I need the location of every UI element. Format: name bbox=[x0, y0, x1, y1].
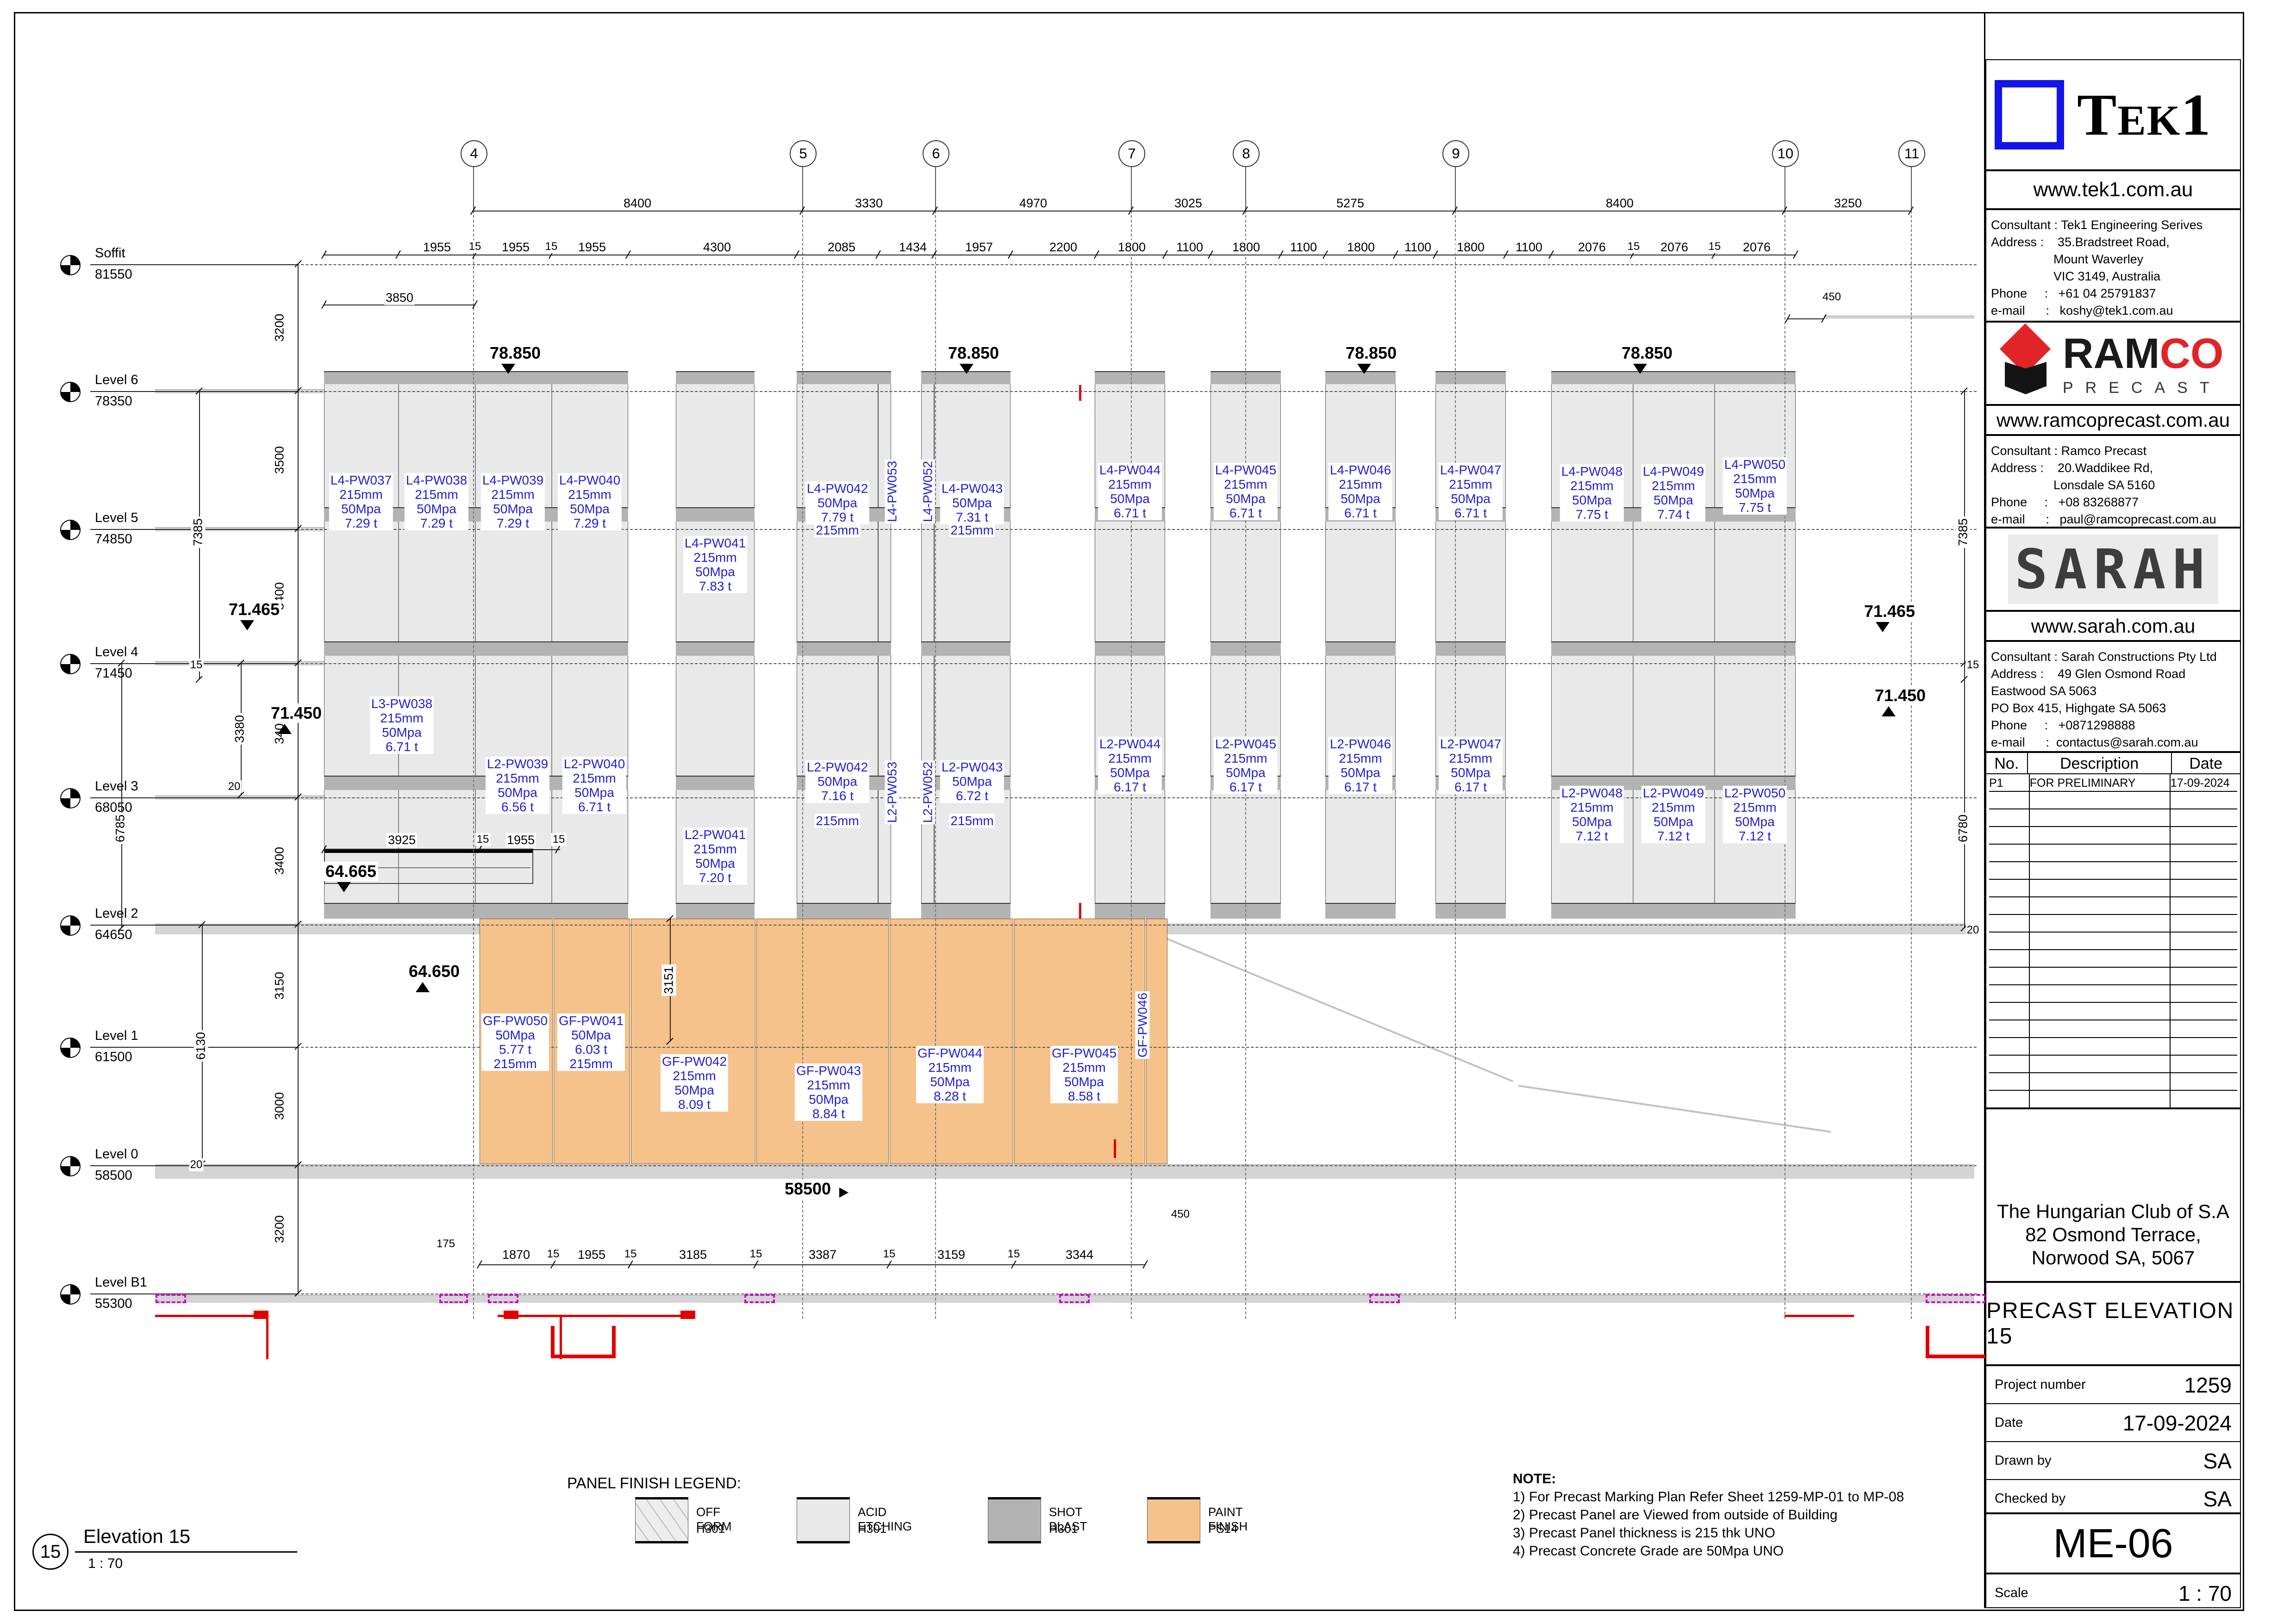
panel-mark-line: 50Mpa bbox=[916, 1075, 984, 1089]
dim-label: 3025 bbox=[1173, 196, 1204, 211]
level-line-solid bbox=[90, 1293, 298, 1294]
field-value: 17-09-2024 bbox=[2123, 1411, 2232, 1436]
panel-mark-line: 215mm bbox=[795, 1078, 862, 1092]
revision-cell bbox=[1989, 1038, 2030, 1056]
dim-label-vertical: 6785 bbox=[113, 813, 128, 844]
panel-mark-line: 50Mpa bbox=[1214, 491, 1278, 506]
dim-label: 1800 bbox=[1346, 240, 1376, 255]
red-mark-line bbox=[1784, 1315, 1854, 1317]
grid-line-stub bbox=[1911, 165, 1912, 211]
revision-cell bbox=[2171, 950, 2237, 968]
dim-line-vertical bbox=[121, 663, 122, 928]
revision-row bbox=[1986, 862, 2240, 880]
panel-mark-line: 6.03 t bbox=[557, 1042, 625, 1057]
revision-cell bbox=[2030, 1020, 2171, 1038]
panel-mark-line: 215mm bbox=[949, 814, 995, 828]
level-elevation: 58500 bbox=[95, 1168, 132, 1183]
dim-label-small: 20 bbox=[189, 1158, 204, 1171]
dim-label: 3344 bbox=[1064, 1248, 1095, 1262]
panel-mark-line: 215mm bbox=[1329, 751, 1392, 765]
field-label: Project number bbox=[1995, 1377, 2086, 1393]
level-name: Level 5 bbox=[95, 510, 138, 526]
sheet-title: PRECAST ELEVATION 15 bbox=[1985, 1282, 2241, 1365]
revision-row bbox=[1986, 792, 2240, 809]
note-line: 3) Precast Panel thickness is 215 thk UN… bbox=[1513, 1524, 1904, 1542]
legend-swatch-shot bbox=[988, 1497, 1041, 1543]
panel-mark-line: 215mm bbox=[1214, 751, 1278, 765]
panel-mark-line: 8.28 t bbox=[916, 1089, 984, 1103]
panel-mark-label: 215mm bbox=[949, 523, 995, 537]
revision-cell: FOR PRELIMINARY bbox=[2030, 774, 2171, 792]
panel-mark-line: 6.17 t bbox=[1214, 780, 1278, 794]
panel-mark-label: L4-PW040215mm50Mpa7.29 t bbox=[558, 473, 622, 530]
revision-row bbox=[1986, 1020, 2240, 1038]
panel-mark-line: 215mm bbox=[1098, 751, 1162, 765]
panel-mark-line: L4-PW039 bbox=[481, 473, 545, 487]
grid-line-stub bbox=[1245, 165, 1246, 211]
panel-mark-line: 215mm bbox=[683, 842, 747, 856]
dim-label-vertical: 7385 bbox=[1956, 516, 1971, 548]
dim-label: 3850 bbox=[384, 291, 415, 305]
revision-cell bbox=[1989, 915, 2030, 933]
panel-mark-line: 7.79 t bbox=[805, 510, 869, 524]
grid-line bbox=[802, 211, 803, 1319]
revision-cell bbox=[2030, 897, 2171, 915]
panel-mark-line: 7.31 t bbox=[940, 510, 1004, 524]
spot-elevation-marker-down bbox=[1633, 364, 1647, 374]
panel-mark-label: L2-PW045215mm50Mpa6.17 t bbox=[1214, 737, 1278, 794]
legend-item-code: PS14 bbox=[1208, 1522, 1238, 1536]
revision-cell bbox=[1989, 985, 2030, 1003]
dim-label-vertical: 7385 bbox=[191, 516, 206, 548]
shot-blast-band bbox=[1435, 371, 1506, 384]
revision-cell bbox=[2030, 845, 2171, 862]
spot-elevation-value: 58500 bbox=[783, 1179, 833, 1199]
panel-mark-line: 50Mpa bbox=[1560, 815, 1624, 829]
ramco-contact-info: Consultant : Ramco PrecastAddress : 20.W… bbox=[1985, 435, 2241, 528]
spot-elevation-value: 78.850 bbox=[1620, 343, 1674, 363]
revision-cell bbox=[1989, 862, 2030, 880]
shot-blast-band bbox=[324, 903, 628, 919]
revision-cell bbox=[2171, 1038, 2237, 1056]
grid-bubble: 7 bbox=[1118, 140, 1145, 167]
dim-label: 1434 bbox=[898, 240, 928, 255]
revision-cell bbox=[1989, 897, 2030, 915]
revision-row bbox=[1986, 1056, 2240, 1073]
panel-mark-label: L4-PW044215mm50Mpa6.71 t bbox=[1098, 463, 1162, 520]
level-elevation: 81550 bbox=[95, 267, 132, 282]
panel-mark-line: L3-PW038 bbox=[370, 696, 434, 711]
panel-mark-line: L4-PW037 bbox=[329, 473, 393, 487]
note-line: 4) Precast Concrete Grade are 50Mpa UNO bbox=[1513, 1542, 1904, 1560]
panel-mark-line: 7.29 t bbox=[558, 516, 622, 530]
grid-line bbox=[1784, 211, 1785, 1319]
panel-mark-line: 50Mpa bbox=[1098, 765, 1162, 780]
panel-mark-line: 6.71 t bbox=[562, 800, 626, 814]
revision-cell: Description bbox=[2028, 753, 2172, 774]
level-name: Level B1 bbox=[95, 1275, 147, 1290]
panel-mark-label: L4-PW04250Mpa7.79 t bbox=[805, 481, 869, 524]
dim-label: 1100 bbox=[1403, 240, 1433, 255]
scale-value: 1 : 70 bbox=[2178, 1581, 2232, 1606]
panel-mark-label: GF-PW043215mm50Mpa8.84 t bbox=[795, 1063, 862, 1121]
panel-mark-line: 50Mpa bbox=[329, 502, 393, 516]
panel-mark-line: 215mm bbox=[814, 523, 860, 537]
level-line-solid bbox=[90, 264, 298, 265]
panel-mark-line: L2-PW040 bbox=[562, 757, 626, 771]
panel-mark-label: L4-PW041215mm50Mpa7.83 t bbox=[683, 536, 747, 593]
panel-mark-line: GF-PW050 bbox=[481, 1014, 549, 1028]
revision-cell bbox=[2171, 1056, 2237, 1073]
panel-mark-line: 50Mpa bbox=[1098, 491, 1162, 506]
shot-blast-band bbox=[934, 903, 1011, 919]
spot-elevation-marker-up bbox=[1882, 706, 1896, 716]
note-line: 1) For Precast Marking Plan Refer Sheet … bbox=[1513, 1488, 1904, 1506]
title-field-row: Drawn bySA bbox=[1986, 1442, 2240, 1480]
revision-cell bbox=[1989, 1003, 2030, 1020]
panel-mark-label: L2-PW053 bbox=[885, 760, 899, 824]
panel-mark-line: 215mm bbox=[1723, 800, 1787, 815]
panel-mark-line: 50Mpa bbox=[805, 496, 869, 510]
tek1-logo-square-icon bbox=[1995, 80, 2064, 149]
level-dim-label: 3200 bbox=[273, 1213, 287, 1245]
panel-mark-line: 6.17 t bbox=[1329, 780, 1392, 794]
panel-mark-line: GF-PW042 bbox=[661, 1054, 728, 1069]
scale-row: Scale 1 : 70 bbox=[1985, 1573, 2241, 1608]
panel-mark-line: L2-PW041 bbox=[683, 827, 747, 842]
revision-cell bbox=[1989, 880, 2030, 897]
dim-line bbox=[1788, 318, 1824, 319]
revision-cell bbox=[2030, 1091, 2171, 1108]
grid-line-stub bbox=[1131, 165, 1132, 211]
title-field-row: Checked bySA bbox=[1986, 1480, 2240, 1518]
dim-label: 8400 bbox=[1604, 196, 1635, 211]
revision-row bbox=[1986, 1091, 2240, 1108]
panel-mark-label: L2-PW046215mm50Mpa6.17 t bbox=[1329, 737, 1392, 794]
panel-mark-line: 8.84 t bbox=[795, 1107, 862, 1121]
level-dim-label: 3150 bbox=[273, 970, 287, 1001]
revision-row bbox=[1986, 809, 2240, 827]
panel-mark-label: L2-PW047215mm50Mpa6.17 t bbox=[1439, 737, 1503, 794]
dim-label: 15 bbox=[544, 240, 559, 253]
dim-label: 15 bbox=[749, 1248, 764, 1261]
panel-mark-label: L2-PW049215mm50Mpa7.12 t bbox=[1641, 786, 1705, 843]
panel-mark-line: 6.71 t bbox=[1098, 506, 1162, 520]
field-value: SA bbox=[2203, 1486, 2232, 1511]
panel-mark-line: 50Mpa bbox=[558, 502, 622, 516]
spot-elevation-marker-up bbox=[278, 724, 292, 734]
client-line: 82 Osmond Terrace, bbox=[1986, 1223, 2240, 1246]
spot-elevation-marker-down bbox=[1357, 364, 1371, 374]
revision-row: No.DescriptionDate bbox=[1986, 753, 2240, 774]
panel-mark-line: L4-PW042 bbox=[805, 481, 869, 496]
dim-line bbox=[473, 211, 1911, 211]
panel-mark-label: 215mm bbox=[814, 814, 860, 828]
spot-elevation-value: 78.850 bbox=[1344, 343, 1398, 363]
panel-mark-line: GF-PW041 bbox=[557, 1014, 625, 1028]
paint-finish-panel bbox=[1014, 919, 1145, 1164]
magenta-dowel-mark bbox=[1926, 1294, 1986, 1303]
panel-mark-line: 50Mpa bbox=[557, 1028, 625, 1042]
dim-label: 3185 bbox=[678, 1248, 708, 1262]
level-name: Level 1 bbox=[95, 1028, 138, 1044]
revision-cell bbox=[1989, 809, 2030, 827]
panel-mark-line: 6.71 t bbox=[1214, 506, 1278, 520]
magenta-dowel-mark bbox=[488, 1294, 518, 1303]
panel-mark-line: 215mm bbox=[949, 523, 995, 537]
panel-mark-line: 215mm bbox=[1641, 800, 1705, 815]
sarah-website: www.sarah.com.au bbox=[1985, 611, 2241, 641]
shot-blast-band bbox=[324, 371, 628, 384]
sarah-logo-text: SARAH bbox=[2008, 535, 2218, 604]
panel-mark-line: L2-PW052 bbox=[921, 760, 935, 824]
spot-elevation-marker-down bbox=[501, 364, 515, 374]
panel-mark-line: L4-PW049 bbox=[1641, 464, 1705, 479]
level-elevation: 78350 bbox=[95, 394, 132, 409]
spot-elevation-marker-down bbox=[337, 882, 351, 892]
legend-swatch-offform bbox=[635, 1497, 688, 1543]
level-name: Level 0 bbox=[95, 1147, 138, 1162]
grid-line bbox=[1911, 211, 1912, 1319]
dim-label: 1955 bbox=[576, 1248, 607, 1262]
panel-mark-line: 50Mpa bbox=[683, 856, 747, 871]
level-dim-label: 3000 bbox=[273, 1090, 287, 1122]
revision-row: P1FOR PRELIMINARY17-09-2024 bbox=[1986, 774, 2240, 792]
panel-mark-label: GF-PW04150Mpa6.03 t215mm bbox=[557, 1014, 625, 1071]
level-marker bbox=[60, 654, 81, 674]
spot-elevation-value: 64.650 bbox=[407, 962, 462, 981]
grid-bubble: 4 bbox=[461, 140, 487, 167]
panel-mark-line: L2-PW042 bbox=[805, 760, 869, 774]
revision-cell bbox=[2030, 950, 2171, 968]
panel-mark-line: 50Mpa bbox=[370, 725, 434, 740]
title-field-row: Date17-09-2024 bbox=[1986, 1404, 2240, 1442]
level-elevation: 64650 bbox=[95, 927, 132, 943]
shot-blast-band bbox=[797, 641, 878, 656]
title-field-row: Project number1259 bbox=[1986, 1366, 2240, 1404]
panel-mark-line: 215mm bbox=[481, 1057, 549, 1071]
revision-cell: Date bbox=[2172, 753, 2240, 774]
revision-cell bbox=[2171, 1003, 2237, 1020]
grid-bubble: 11 bbox=[1898, 140, 1925, 167]
panel-mark-line: 6.72 t bbox=[940, 789, 1004, 803]
revision-cell bbox=[2171, 845, 2237, 862]
revision-cell bbox=[1989, 827, 2030, 845]
revision-row bbox=[1986, 845, 2240, 862]
grid-line bbox=[473, 211, 474, 1319]
panel-mark-label: L2-PW039215mm50Mpa6.56 t bbox=[486, 757, 549, 814]
spot-elevation-value: 71.450 bbox=[269, 703, 324, 723]
panel-mark-label: L4-PW053 bbox=[885, 460, 899, 523]
revision-cell bbox=[1989, 950, 2030, 968]
contact-info-line: Address : 35.Bradstreet Road, bbox=[1991, 234, 2235, 251]
panel-mark-line: 50Mpa bbox=[1050, 1075, 1118, 1089]
paint-finish-panel bbox=[631, 919, 755, 1164]
panel-mark-label: L4-PW050215mm50Mpa7.75 t bbox=[1723, 457, 1787, 515]
shot-blast-band bbox=[1325, 641, 1396, 656]
level-elevation: 71450 bbox=[95, 666, 132, 681]
revision-cell bbox=[2171, 827, 2237, 845]
view-scale: 1 : 70 bbox=[88, 1556, 123, 1572]
sarah-contact-info: Consultant : Sarah Constructions Pty Ltd… bbox=[1985, 641, 2241, 752]
revision-table: No.DescriptionDateP1FOR PRELIMINARY17-09… bbox=[1985, 752, 2241, 1108]
dim-label: 1955 bbox=[577, 240, 607, 255]
dim-label-small: 15 bbox=[189, 659, 204, 672]
grid-bubble: 5 bbox=[790, 140, 817, 167]
panel-mark-line: GF-PW043 bbox=[795, 1063, 862, 1078]
panel-mark-line: 215mm bbox=[1641, 479, 1705, 493]
dim-label: 15 bbox=[1707, 240, 1722, 253]
panel-mark-line: 7.29 t bbox=[329, 516, 393, 530]
magenta-dowel-mark bbox=[439, 1294, 468, 1303]
dim-label: 15 bbox=[1626, 240, 1641, 253]
spot-elevation-marker-down bbox=[1876, 622, 1890, 632]
dim-label: 1800 bbox=[1455, 240, 1486, 255]
dim-label: 15 bbox=[882, 1248, 897, 1261]
contact-info-line: e-mail : koshy@tek1.com.au bbox=[1991, 302, 2235, 319]
panel-mark-line: 215mm bbox=[1560, 800, 1624, 815]
panel-mark-line: 6.56 t bbox=[486, 800, 549, 814]
panel-mark-line: L4-PW045 bbox=[1214, 463, 1278, 477]
revision-cell bbox=[2171, 809, 2237, 827]
steel-beam bbox=[1824, 316, 1974, 319]
level-name: Soffit bbox=[95, 246, 125, 261]
ramco-website: www.ramcoprecast.com.au bbox=[1985, 405, 2241, 435]
panel-mark-label: L3-PW038215mm50Mpa6.71 t bbox=[370, 696, 434, 754]
panel-mark-line: 215mm bbox=[1439, 477, 1503, 491]
shot-blast-band bbox=[676, 507, 755, 522]
dim-label: 4970 bbox=[1018, 196, 1048, 211]
contact-info-line: Eastwood SA 5063 bbox=[1991, 683, 2235, 700]
legend-swatch-acid bbox=[797, 1497, 850, 1543]
panel-mark-line: 215mm bbox=[1050, 1060, 1118, 1075]
field-label: Drawn by bbox=[1995, 1453, 2052, 1468]
dim-label: 15 bbox=[551, 833, 567, 846]
contact-info-line: Address : 49 Glen Osmond Road bbox=[1991, 665, 2235, 683]
view-number-bubble: 15 bbox=[32, 1534, 69, 1570]
panel-mark-line: 50Mpa bbox=[562, 785, 626, 800]
panel-mark-line: 215mm bbox=[557, 1057, 625, 1071]
shot-blast-band bbox=[676, 776, 755, 790]
red-mark-square bbox=[680, 1311, 695, 1319]
contact-info-line: VIC 3149, Australia bbox=[1991, 268, 2235, 285]
dim-label-small: 175 bbox=[436, 1237, 456, 1250]
tek1-logo-box: TEK1 bbox=[1985, 59, 2241, 170]
panel-mark-line: GF-PW046 bbox=[1136, 991, 1150, 1059]
revision-cell bbox=[1989, 1073, 2030, 1091]
sarah-logo-box: SARAH bbox=[1985, 528, 2241, 611]
revision-cell bbox=[2030, 827, 2171, 845]
panel-mark-line: 50Mpa bbox=[481, 1028, 549, 1042]
revision-row bbox=[1986, 880, 2240, 897]
panel-mark-line: L2-PW043 bbox=[940, 760, 1004, 774]
revision-row bbox=[1986, 915, 2240, 933]
grid-line-stub bbox=[802, 165, 803, 211]
level-dim-line bbox=[298, 264, 299, 1293]
panel-mark-line: 7.12 t bbox=[1723, 829, 1787, 843]
panel-mark-line: 215mm bbox=[558, 487, 622, 502]
shot-blast-band bbox=[934, 641, 1011, 656]
notes-block: NOTE: 1) For Precast Marking Plan Refer … bbox=[1513, 1470, 1904, 1560]
revision-row bbox=[1986, 950, 2240, 968]
panel-mark-line: L2-PW039 bbox=[486, 757, 549, 771]
shot-blast-band bbox=[676, 903, 755, 919]
panel-mark-line: L4-PW043 bbox=[940, 481, 1004, 496]
panel-mark-line: 50Mpa bbox=[940, 496, 1004, 510]
legend-item-code: H301 bbox=[858, 1522, 886, 1536]
panel-mark-label: GF-PW044215mm50Mpa8.28 t bbox=[916, 1046, 984, 1103]
dim-label-small: 450 bbox=[1822, 291, 1842, 304]
panel-mark-line: 7.75 t bbox=[1723, 500, 1787, 515]
view-title: Elevation 15 bbox=[83, 1525, 190, 1548]
panel-mark-label: L4-PW049215mm50Mpa7.74 t bbox=[1641, 464, 1705, 522]
revision-row bbox=[1986, 1073, 2240, 1091]
grid-line-stub bbox=[1455, 165, 1456, 211]
sheet-number: ME-06 bbox=[1985, 1513, 2241, 1573]
drawing-sheet: 4567891011Soffit81550Level 678350Level 5… bbox=[0, 0, 2296, 1623]
panel-mark-line: 7.20 t bbox=[683, 871, 747, 885]
panel-mark-line: 50Mpa bbox=[1560, 493, 1624, 507]
dim-label-small: 15 bbox=[1966, 659, 1980, 672]
shot-blast-band bbox=[1551, 903, 1796, 919]
dim-label: 5275 bbox=[1335, 196, 1366, 211]
magenta-dowel-mark bbox=[744, 1294, 775, 1303]
revision-cell bbox=[2171, 985, 2237, 1003]
notes-title: NOTE: bbox=[1513, 1470, 1904, 1488]
level-dim-label: 3500 bbox=[273, 444, 287, 476]
dim-label: 15 bbox=[475, 833, 491, 846]
panel-mark-line: 50Mpa bbox=[1214, 765, 1278, 780]
panel-mark-line: 50Mpa bbox=[481, 502, 545, 516]
panel-mark-label: 215mm bbox=[814, 523, 860, 537]
panel-mark-line: L4-PW048 bbox=[1560, 464, 1624, 479]
revision-cell bbox=[2030, 1073, 2171, 1091]
contact-info-line: Phone : +0871298888 bbox=[1991, 717, 2235, 734]
level-line bbox=[157, 925, 1977, 926]
level-marker bbox=[60, 520, 81, 540]
revision-cell bbox=[2171, 862, 2237, 880]
tek1-website: www.tek1.com.au bbox=[1985, 170, 2241, 209]
field-value: 1259 bbox=[2184, 1373, 2232, 1398]
legend-item-code: H301 bbox=[1049, 1522, 1078, 1536]
dim-label: 2085 bbox=[826, 240, 857, 255]
panel-mark-line: L4-PW041 bbox=[683, 536, 747, 550]
dim-label: 3387 bbox=[807, 1248, 838, 1262]
level-marker bbox=[60, 382, 81, 402]
revision-cell bbox=[2030, 792, 2171, 809]
steel-beam bbox=[155, 1164, 1974, 1179]
panel-mark-label: L2-PW048215mm50Mpa7.12 t bbox=[1560, 786, 1624, 843]
panel-mark-line: L2-PW044 bbox=[1098, 737, 1162, 751]
red-mark-line bbox=[498, 1315, 694, 1317]
panel-mark-label: GF-PW045215mm50Mpa8.58 t bbox=[1050, 1046, 1118, 1103]
panel-mark-line: 7.74 t bbox=[1641, 507, 1705, 522]
panel-mark-line: 7.12 t bbox=[1641, 829, 1705, 843]
panel-mark-line: 8.58 t bbox=[1050, 1089, 1118, 1103]
dim-label-vertical: 6780 bbox=[1956, 813, 1971, 844]
panel-mark-line: 50Mpa bbox=[805, 774, 869, 789]
panel-mark-label: L2-PW044215mm50Mpa6.17 t bbox=[1098, 737, 1162, 794]
panel-mark-line: L2-PW049 bbox=[1641, 786, 1705, 800]
panel-mark-label: L4-PW037215mm50Mpa7.29 t bbox=[329, 473, 393, 530]
dim-line bbox=[324, 849, 560, 850]
shot-blast-band bbox=[1551, 641, 1796, 656]
dim-label: 8400 bbox=[622, 196, 653, 211]
panel-mark-label: L2-PW050215mm50Mpa7.12 t bbox=[1723, 786, 1787, 843]
grid-line bbox=[935, 211, 936, 1319]
dim-line bbox=[324, 255, 1796, 255]
panel-mark-label: L4-PW047215mm50Mpa6.71 t bbox=[1439, 463, 1503, 520]
